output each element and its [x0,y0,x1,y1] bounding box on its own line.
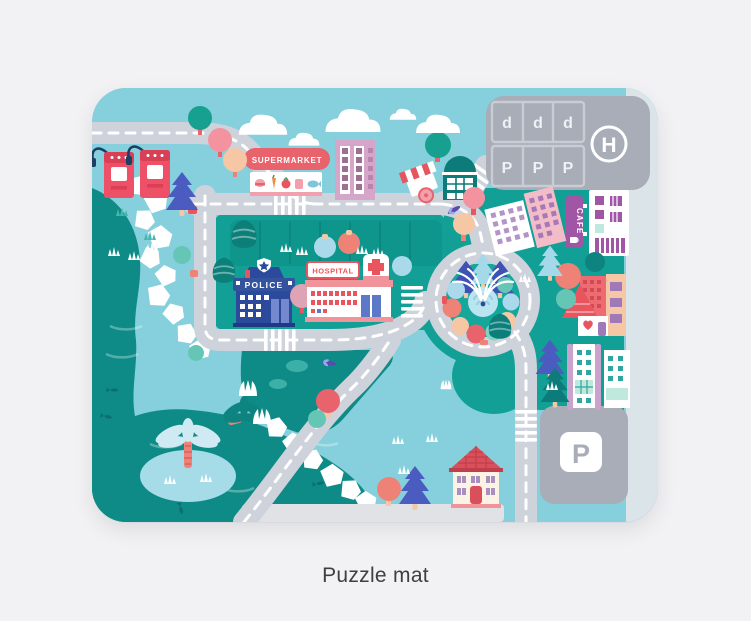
stall-letter: P [563,160,574,177]
stall-letter: P [502,160,513,177]
supermarket-sign-label: SUPERMARKET [252,156,323,165]
cafe-sign-label: CAFE [575,208,584,235]
stall-letter: P [533,160,544,177]
stall-letter: d [502,115,512,132]
police-sign-label: POLICE [245,280,284,290]
supermarket-building: SUPERMARKET [244,148,330,196]
cafe-building: CAFE [565,190,629,256]
parking-lot: P [540,406,628,504]
hospital-sign-label: HOSPITAL [312,267,353,276]
hospital-building: HOSPITAL [305,254,393,322]
apartment-building-pink [335,140,375,200]
puzzle-mat-card[interactable]: d d d P P P H P [92,88,658,522]
parking-sign-letter: P [572,439,590,469]
stall-letter: d [533,115,543,132]
image-caption: Puzzle mat [0,564,751,588]
rooftop-parking-lot: d d d P P P H [486,96,650,190]
helipad-letter: H [601,134,616,157]
stall-letter: d [563,115,573,132]
coffee-cup-icon [570,237,578,243]
puzzle-mat-illustration: d d d P P P H P [92,88,658,522]
mint-buildings [567,344,630,410]
